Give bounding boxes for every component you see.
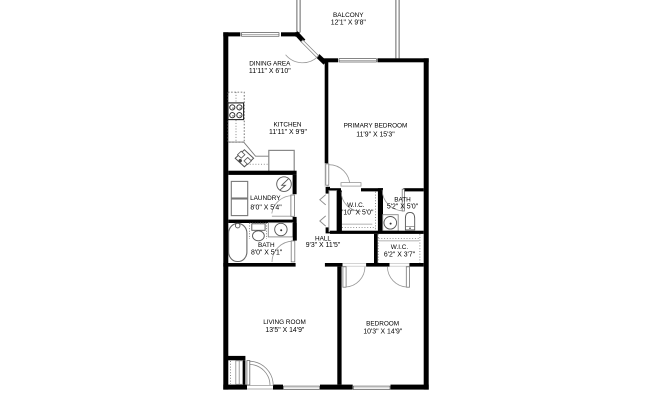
svg-text:5'2" X 5'0": 5'2" X 5'0" <box>387 203 419 210</box>
svg-text:"10" X 5'0": "10" X 5'0" <box>341 210 374 217</box>
svg-text:8'0" X 5'4": 8'0" X 5'4" <box>250 204 282 211</box>
svg-text:W.I.C.: W.I.C. <box>391 244 409 251</box>
svg-text:BALCONY: BALCONY <box>333 12 364 19</box>
svg-text:BEDROOM: BEDROOM <box>366 321 399 328</box>
svg-text:LIVING ROOM: LIVING ROOM <box>263 319 306 326</box>
svg-text:11'11" X 9'9": 11'11" X 9'9" <box>269 129 307 136</box>
svg-text:6'2" X 3'7": 6'2" X 3'7" <box>384 251 416 258</box>
svg-text:W.I.C.: W.I.C. <box>347 202 365 209</box>
svg-text:8'0" X 5'1": 8'0" X 5'1" <box>251 250 283 257</box>
svg-text:9'3" X 11'5": 9'3" X 11'5" <box>306 242 341 249</box>
svg-text:PRIMARY BEDROOM: PRIMARY BEDROOM <box>344 122 408 129</box>
svg-text:BATH: BATH <box>258 242 275 249</box>
svg-text:13'5" X 14'9": 13'5" X 14'9" <box>265 327 304 334</box>
svg-text:11'11" X 6'10": 11'11" X 6'10" <box>249 68 291 75</box>
svg-text:12'1" X 9'8": 12'1" X 9'8" <box>331 20 367 27</box>
svg-text:LAUNDRY: LAUNDRY <box>250 195 281 202</box>
svg-text:10'3" X 14'9": 10'3" X 14'9" <box>363 329 402 336</box>
svg-text:11'9" X 15'3": 11'9" X 15'3" <box>356 132 395 139</box>
svg-text:KITCHEN: KITCHEN <box>273 122 301 129</box>
svg-text:DINING AREA: DINING AREA <box>249 60 291 67</box>
